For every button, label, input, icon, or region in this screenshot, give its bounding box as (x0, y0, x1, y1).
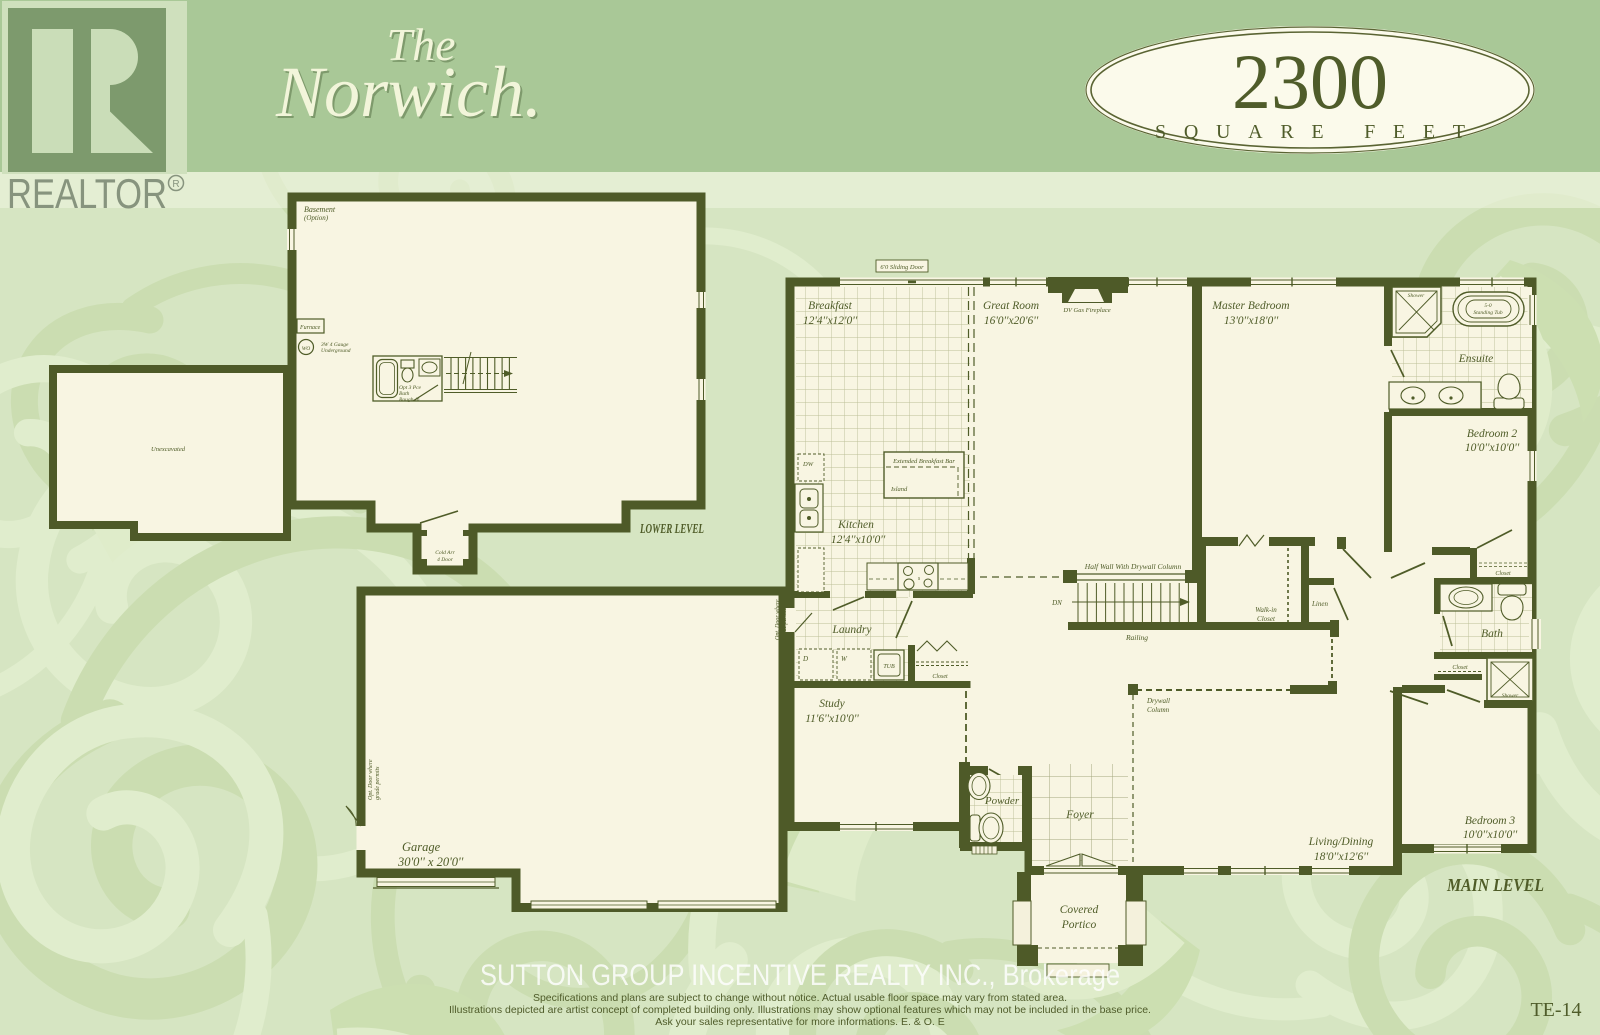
svg-text:4 Door: 4 Door (437, 556, 454, 563)
svg-text:30'0'' x 20'0'': 30'0'' x 20'0'' (397, 855, 464, 869)
svg-text:R: R (172, 179, 179, 190)
svg-text:TE-14: TE-14 (1530, 999, 1581, 1021)
svg-text:10'0''x10'0'': 10'0''x10'0'' (1465, 442, 1520, 454)
svg-text:Linen: Linen (1311, 600, 1328, 608)
svg-text:SUTTON GROUP INCENTIVE REALTY: SUTTON GROUP INCENTIVE REALTY INC., Brok… (480, 959, 1120, 992)
svg-text:Unexcavated: Unexcavated (151, 446, 186, 453)
svg-text:Closet: Closet (1257, 615, 1276, 623)
svg-text:Closet: Closet (1495, 571, 1511, 577)
svg-text:Kitchen: Kitchen (837, 519, 874, 531)
svg-text:Bedroom 2: Bedroom 2 (1467, 428, 1518, 440)
svg-text:Opt. Door where: Opt. Door where (368, 759, 374, 800)
svg-text:Ensuite: Ensuite (1458, 353, 1494, 365)
svg-text:Specifications and plans are s: Specifications and plans are subject to … (533, 992, 1067, 1004)
svg-text:Portico: Portico (1061, 919, 1097, 931)
svg-text:(Option): (Option) (304, 214, 329, 222)
svg-text:Norwich.: Norwich. (275, 52, 542, 132)
svg-text:Standing Tub: Standing Tub (1473, 310, 1502, 316)
svg-text:Column: Column (1147, 706, 1170, 714)
svg-text:Closet: Closet (1452, 665, 1468, 671)
svg-text:MAIN LEVEL: MAIN LEVEL (1446, 875, 1544, 895)
svg-text:18'0''x12'6'': 18'0''x12'6'' (1314, 851, 1369, 863)
svg-text:Living/Dining: Living/Dining (1308, 836, 1374, 848)
svg-text:TUB: TUB (883, 664, 895, 670)
svg-text:Master Bedroom: Master Bedroom (1211, 300, 1289, 312)
svg-text:Foyer: Foyer (1065, 809, 1094, 821)
svg-text:DW: DW (802, 461, 814, 468)
svg-text:Basement: Basement (304, 205, 336, 214)
svg-text:DV Gas Fireplace: DV Gas Fireplace (1062, 307, 1110, 314)
svg-text:Opt. Door where: Opt. Door where (775, 599, 781, 640)
svg-text:16'0''x20'6'': 16'0''x20'6'' (984, 315, 1039, 327)
svg-text:LOWER LEVEL: LOWER LEVEL (639, 522, 704, 537)
svg-text:grade permits: grade permits (375, 766, 381, 800)
svg-text:Closet: Closet (932, 674, 948, 680)
svg-text:Bath: Bath (1481, 628, 1503, 640)
svg-text:Walk-in: Walk-in (1255, 606, 1277, 614)
svg-text:Island: Island (890, 486, 908, 493)
svg-text:D: D (802, 655, 808, 663)
svg-text:Shower: Shower (1502, 693, 1519, 699)
svg-text:5-0: 5-0 (1484, 303, 1492, 309)
svg-text:Garage: Garage (402, 840, 441, 854)
svg-text:DN: DN (1051, 599, 1062, 607)
svg-text:grade permits: grade permits (782, 606, 788, 640)
svg-text:Furnace: Furnace (299, 325, 321, 331)
svg-text:2300: 2300 (1232, 38, 1388, 125)
svg-text:Half Wall With Drywall Column: Half Wall With Drywall Column (1084, 562, 1182, 571)
svg-text:Extended Breakfast Bar: Extended Breakfast Bar (892, 458, 955, 465)
svg-text:Ask your sales representative: Ask your sales representative for more i… (655, 1016, 944, 1028)
svg-text:Laundry: Laundry (832, 624, 873, 636)
svg-text:Illustrations depicted are art: Illustrations depicted are artist concep… (449, 1004, 1151, 1016)
svg-text:12'4''x10'0'': 12'4''x10'0'' (831, 534, 886, 546)
svg-text:3W 4 Gauge: 3W 4 Gauge (320, 341, 349, 348)
svg-text:Underground: Underground (321, 348, 351, 354)
svg-text:Railing: Railing (1125, 633, 1148, 642)
svg-text:Great Room: Great Room (983, 300, 1039, 312)
svg-text:Bedroom 3: Bedroom 3 (1465, 815, 1516, 827)
svg-text:11'6''x10'0'': 11'6''x10'0'' (805, 713, 859, 725)
svg-text:6'0 Sliding Door: 6'0 Sliding Door (880, 264, 924, 271)
svg-text:12'4''x12'0'': 12'4''x12'0'' (803, 315, 858, 327)
svg-text:Shower: Shower (1408, 293, 1425, 299)
svg-text:Powder: Powder (984, 795, 1020, 807)
svg-text:WO: WO (302, 346, 311, 352)
svg-text:Study: Study (819, 698, 845, 710)
svg-text:Drywall: Drywall (1146, 697, 1170, 705)
svg-text:13'0''x18'0'': 13'0''x18'0'' (1224, 315, 1279, 327)
svg-text:Breakfast: Breakfast (808, 300, 852, 312)
svg-text:Rough-in: Rough-in (398, 397, 420, 403)
svg-text:Covered: Covered (1060, 904, 1099, 916)
svg-text:10'0''x10'0'': 10'0''x10'0'' (1463, 829, 1518, 841)
svg-text:Cold Arr: Cold Arr (435, 550, 455, 556)
svg-text:REALTOR: REALTOR (7, 170, 167, 217)
